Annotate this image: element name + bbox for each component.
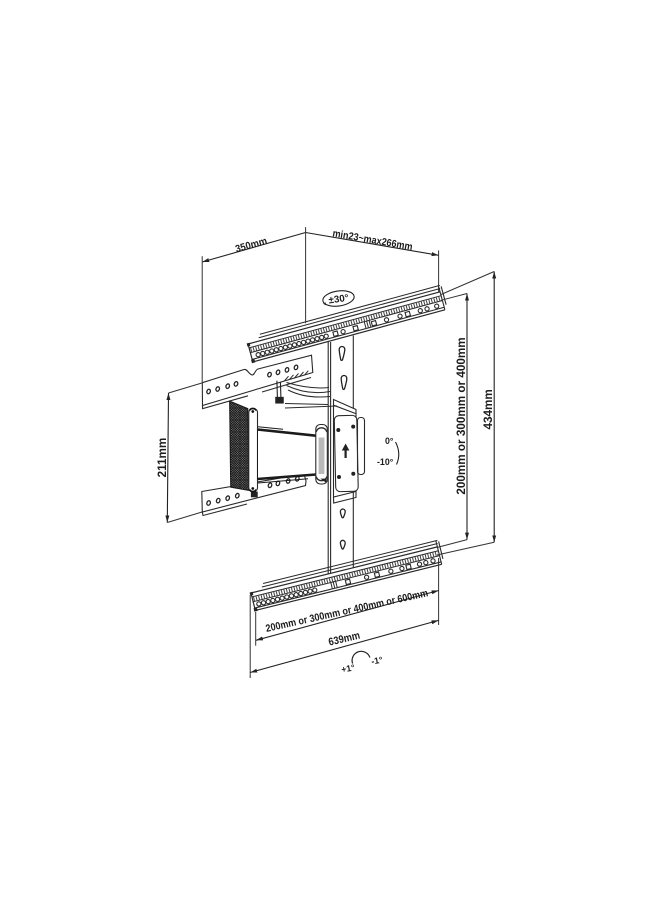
- svg-text:211mm: 211mm: [156, 438, 169, 478]
- svg-text:434mm: 434mm: [482, 389, 495, 429]
- svg-text:-1°: -1°: [371, 655, 384, 667]
- svg-text:0°: 0°: [385, 436, 394, 446]
- svg-text:200mm or 300mm or 400mm: 200mm or 300mm or 400mm: [455, 337, 468, 494]
- svg-text:-10°: -10°: [377, 457, 394, 467]
